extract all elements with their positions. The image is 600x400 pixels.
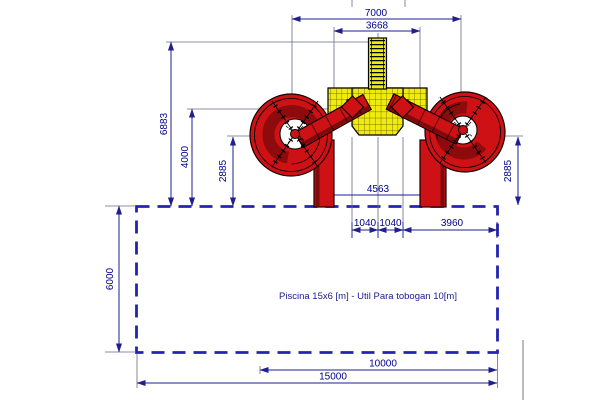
dim-6000-text: 6000 (105, 267, 116, 290)
pool-label: Piscina 15x6 [m] - Util Para tobogan 10[… (279, 291, 457, 302)
dim-15000-text: 15000 (319, 372, 347, 383)
dim-7000-text: 7000 (365, 8, 388, 19)
access-ladder (369, 38, 387, 89)
waterslide-plan-svg: 7000 3668 6883 4000 2885 2885 4563 (0, 0, 600, 400)
dim-10000-text: 10000 (369, 359, 397, 370)
dim-6883-text: 6883 (159, 112, 170, 135)
dim-4000-text: 4000 (180, 145, 191, 168)
dim-6000: 6000 (105, 206, 119, 352)
technical-drawing-canvas: 7000 3668 6883 4000 2885 2885 4563 (0, 0, 600, 400)
dim-1040-left-text: 1040 (354, 218, 377, 229)
dim-1040-1040-3960: 1040 1040 3960 (352, 218, 497, 238)
dim-6883: 6883 (159, 42, 171, 206)
dim-2885-right-text: 2885 (503, 159, 514, 182)
dim-10000: 10000 (260, 359, 497, 371)
dim-2885-left: 2885 (218, 137, 233, 206)
dim-15000: 15000 (137, 372, 497, 384)
dimensions: 7000 3668 6883 4000 2885 2885 4563 (105, 8, 518, 383)
dim-3668: 3668 (334, 21, 420, 32)
dim-3960-text: 3960 (441, 218, 464, 229)
dim-4000: 4000 (180, 109, 192, 206)
dim-2885-right: 2885 (503, 137, 518, 205)
dim-2885-left-text: 2885 (218, 159, 229, 182)
dim-4563: 4563 (325, 184, 430, 195)
dim-1040-right-text: 1040 (379, 218, 402, 229)
dim-4563-text: 4563 (367, 184, 390, 195)
dim-7000: 7000 (292, 8, 461, 19)
dim-3668-text: 3668 (366, 21, 389, 32)
